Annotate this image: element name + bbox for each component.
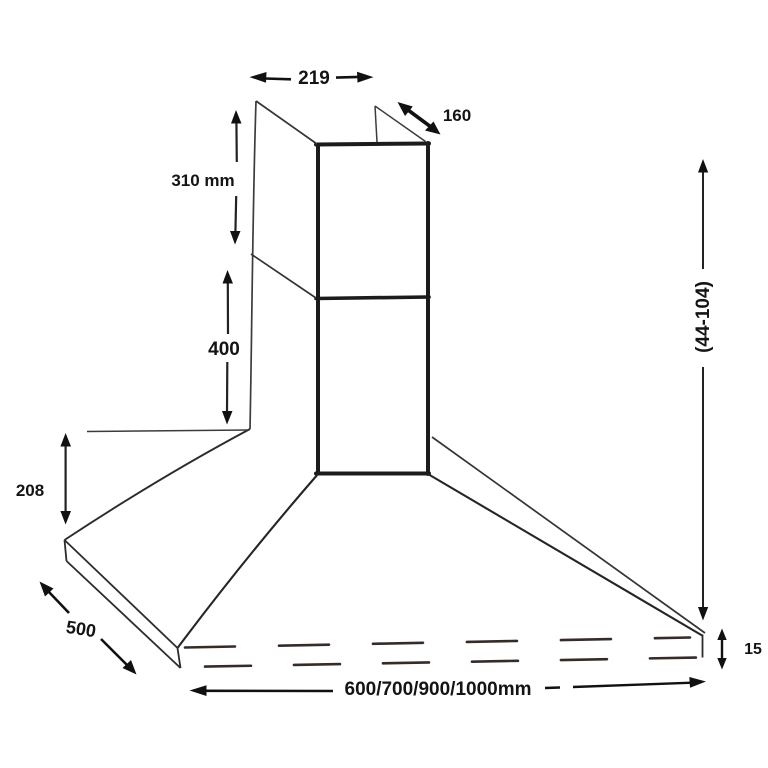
svg-text:310 mm: 310 mm <box>171 171 234 190</box>
svg-text:219: 219 <box>298 68 330 89</box>
svg-text:(44-104): (44-104) <box>693 281 714 353</box>
svg-text:15: 15 <box>744 641 762 658</box>
svg-text:400: 400 <box>208 339 240 360</box>
svg-text:600/700/900/1000mm: 600/700/900/1000mm <box>345 679 532 700</box>
svg-text:208: 208 <box>16 481 44 500</box>
svg-text:160: 160 <box>443 106 471 125</box>
